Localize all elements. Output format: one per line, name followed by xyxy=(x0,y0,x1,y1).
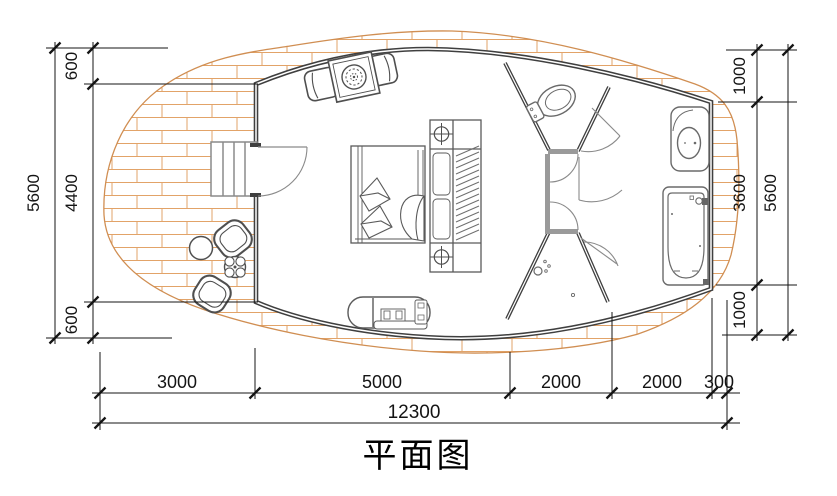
dim-right-3600: 3600 xyxy=(730,174,749,212)
floor-plan-page: 600 4400 600 5600 1000 3600 1000 5600 30… xyxy=(0,0,837,496)
floor-plan-canvas: 600 4400 600 5600 1000 3600 1000 5600 30… xyxy=(0,0,837,496)
double-bed xyxy=(351,146,425,243)
dim-right-1000-top: 1000 xyxy=(730,57,749,95)
dim-left-4400: 4400 xyxy=(62,174,81,212)
dim-left-5600: 5600 xyxy=(24,174,43,212)
dim-right-5600: 5600 xyxy=(761,174,780,212)
closet-stub-top xyxy=(548,149,578,154)
dim-right-1000-bottom: 1000 xyxy=(730,291,749,329)
dim-bottom-5000: 5000 xyxy=(362,372,402,392)
dim-bottom-12300: 12300 xyxy=(388,402,441,423)
closet-back-wall xyxy=(545,154,550,234)
dim-left-600-top: 600 xyxy=(62,52,81,80)
dim-bottom-2000-a: 2000 xyxy=(541,372,581,392)
dim-bottom-300: 300 xyxy=(704,372,734,392)
planter xyxy=(225,257,246,278)
grill-table xyxy=(328,52,380,102)
floorplan-title: 平面图 xyxy=(363,437,474,475)
outdoor-round-table xyxy=(190,237,213,260)
closet-stub-bottom xyxy=(548,229,578,234)
dim-bottom-3000: 3000 xyxy=(157,372,197,392)
tub-faucet xyxy=(696,198,702,204)
dim-bottom-2000-b: 2000 xyxy=(642,372,682,392)
dim-left-600-bottom: 600 xyxy=(62,306,81,334)
sink-vanity xyxy=(671,107,709,171)
chaise-lounge xyxy=(348,297,430,329)
bathtub xyxy=(663,187,709,285)
entry-stairs xyxy=(211,142,257,196)
